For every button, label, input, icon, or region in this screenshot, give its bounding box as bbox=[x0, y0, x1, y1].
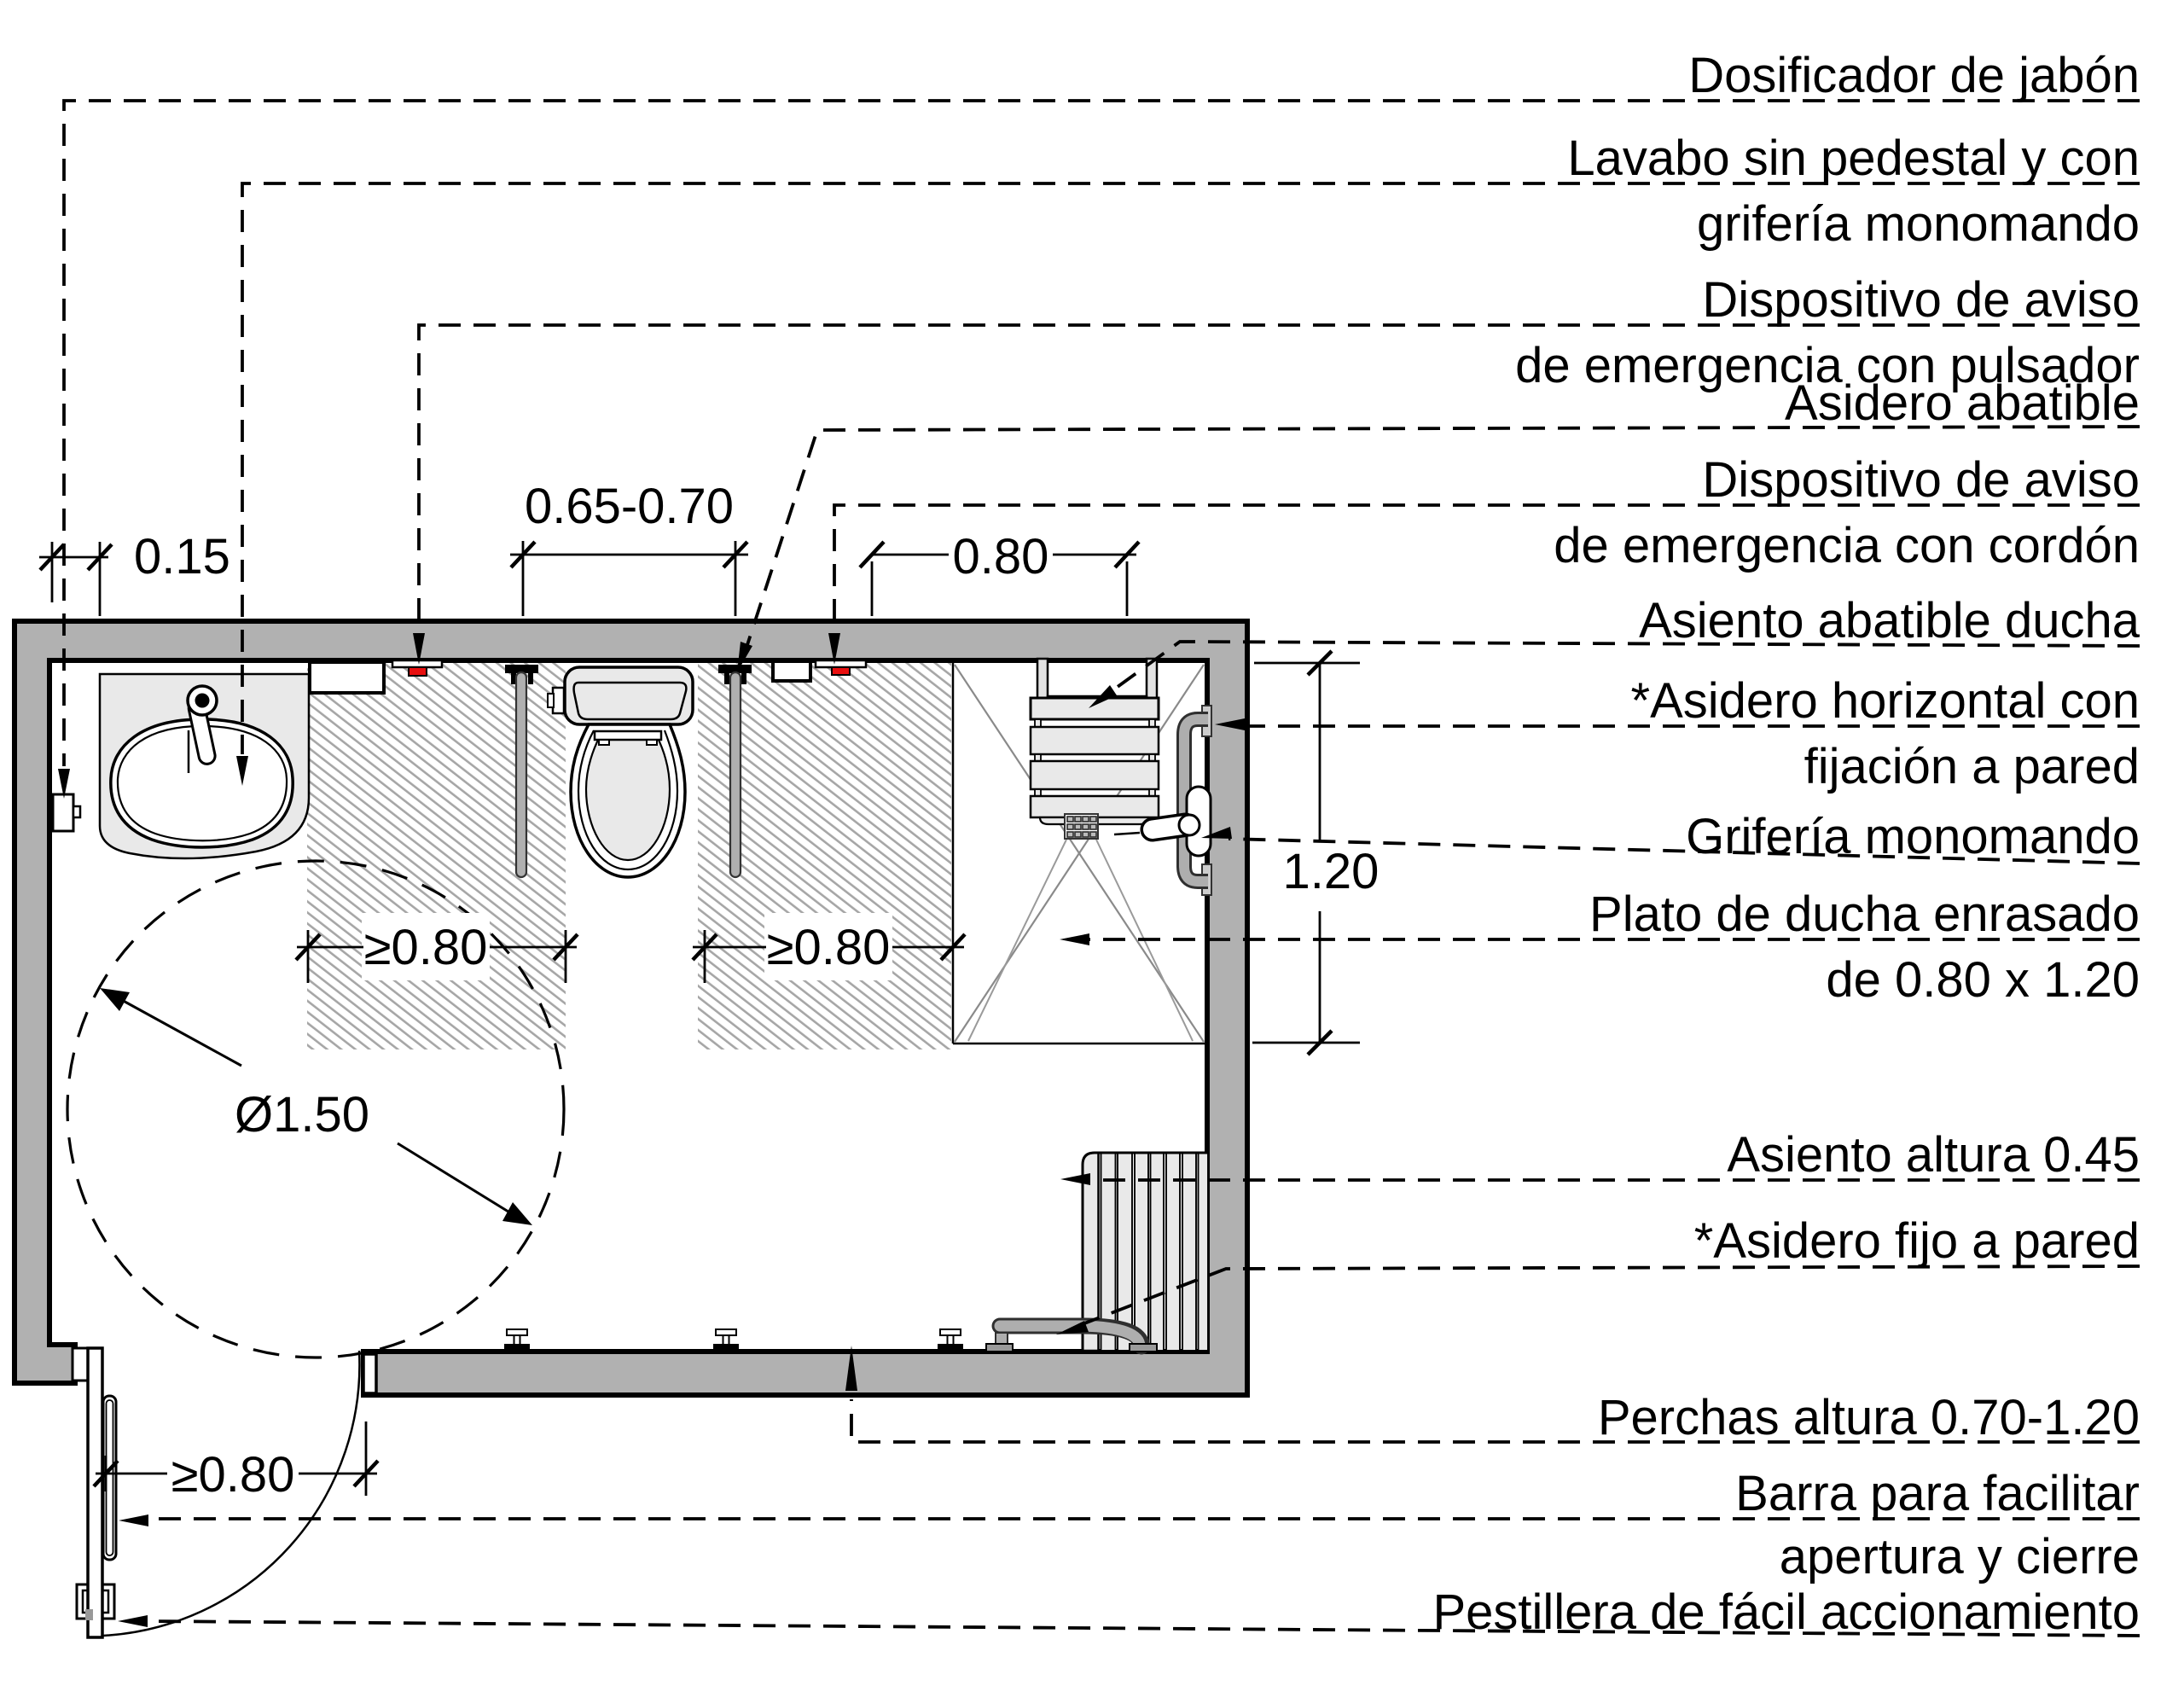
svg-text:grifería monomando: grifería monomando bbox=[1697, 196, 2140, 252]
svg-text:0.65-0.70: 0.65-0.70 bbox=[525, 479, 734, 534]
svg-text:Pestillera de fácil accionamie: Pestillera de fácil accionamiento bbox=[1432, 1584, 2140, 1640]
svg-text:Asiento altura 0.45: Asiento altura 0.45 bbox=[1727, 1127, 2140, 1183]
svg-text:Dispositivo de aviso: Dispositivo de aviso bbox=[1702, 272, 2140, 328]
svg-text:Dosificador de jabón: Dosificador de jabón bbox=[1688, 48, 2140, 103]
svg-text:*Asidero horizontal con: *Asidero horizontal con bbox=[1631, 673, 2140, 729]
svg-text:de emergencia con cordón: de emergencia con cordón bbox=[1554, 518, 2140, 573]
svg-text:Dispositivo de aviso: Dispositivo de aviso bbox=[1702, 452, 2140, 508]
svg-text:apertura y cierre: apertura y cierre bbox=[1780, 1529, 2140, 1584]
svg-text:Plato de ducha enrasado: Plato de ducha enrasado bbox=[1589, 887, 2140, 942]
svg-text:0.80: 0.80 bbox=[953, 529, 1049, 584]
svg-text:Asiento abatible ducha: Asiento abatible ducha bbox=[1639, 593, 2140, 648]
svg-text:0.15: 0.15 bbox=[134, 529, 230, 584]
svg-text:Perchas altura 0.70-1.20: Perchas altura 0.70-1.20 bbox=[1598, 1390, 2140, 1445]
svg-text:Grifería monomando: Grifería monomando bbox=[1686, 809, 2140, 864]
svg-text:*Asidero fijo a pared: *Asidero fijo a pared bbox=[1694, 1213, 2140, 1269]
svg-text:Barra para facilitar: Barra para facilitar bbox=[1735, 1466, 2140, 1521]
svg-text:fijación a pared: fijación a pared bbox=[1804, 739, 2140, 794]
svg-text:≥0.80: ≥0.80 bbox=[171, 1447, 295, 1503]
svg-text:de 0.80 x 1.20: de 0.80 x 1.20 bbox=[1826, 952, 2140, 1008]
svg-text:Ø1.50: Ø1.50 bbox=[235, 1087, 369, 1142]
svg-text:1.20: 1.20 bbox=[1283, 844, 1380, 899]
svg-text:Asidero abatible: Asidero abatible bbox=[1785, 375, 2140, 431]
svg-text:≥0.80: ≥0.80 bbox=[364, 920, 488, 975]
svg-text:Lavabo sin pedestal y con: Lavabo sin pedestal y con bbox=[1567, 131, 2140, 186]
svg-text:≥0.80: ≥0.80 bbox=[767, 920, 891, 975]
